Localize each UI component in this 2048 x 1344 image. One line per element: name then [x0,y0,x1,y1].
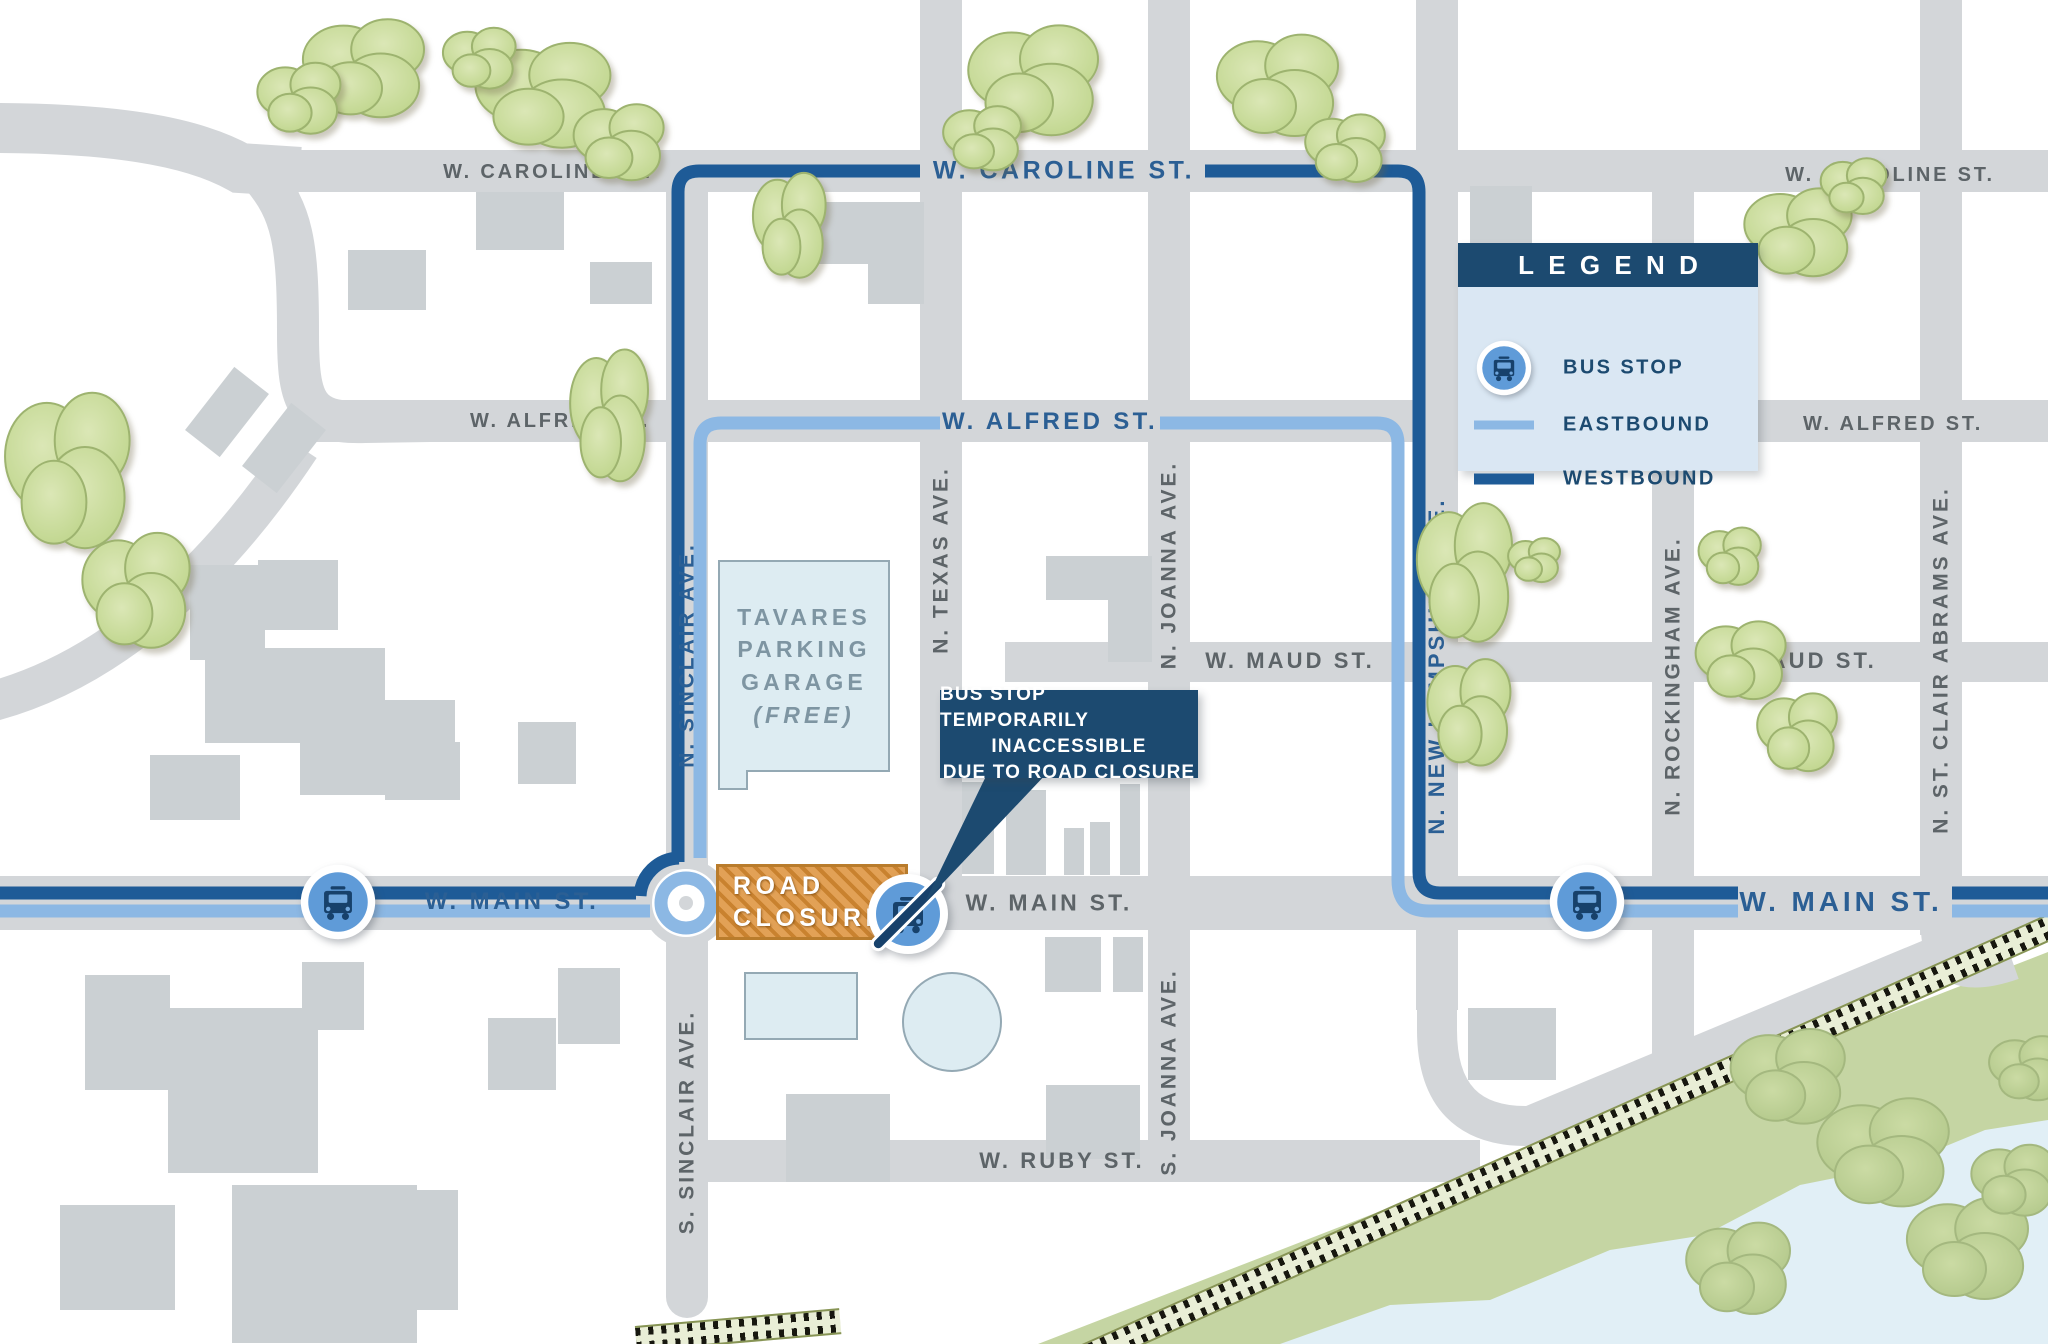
closure-callout: BUS STOP TEMPORARILY INACCESSIBLE DUE TO… [940,690,1198,778]
legend-item-eastbound: EASTBOUND [1563,414,1711,437]
callout-tail-layer [0,0,2048,1344]
callout-text-line: DUE TO ROAD CLOSURE [943,760,1196,786]
callout-text-line: INACCESSIBLE [991,734,1146,760]
callout-text-line: BUS STOP TEMPORARILY [940,682,1198,734]
legend-title: LEGEND [1458,243,1758,287]
legend-item-bus-stop: BUS STOP [1563,357,1684,380]
westbound-line-swatch [1474,474,1534,485]
legend-item-westbound: WESTBOUND [1563,468,1716,491]
eastbound-line-swatch [1474,421,1534,430]
bus-stop-icon [1477,341,1531,395]
detour-map: TAVARES PARKING GARAGE (FREE) ROAD CLOSU… [0,0,2048,1344]
callout-tail [925,772,1048,902]
legend: LEGEND BUS STOP EASTBOUND WESTBOUND [1458,243,1758,471]
